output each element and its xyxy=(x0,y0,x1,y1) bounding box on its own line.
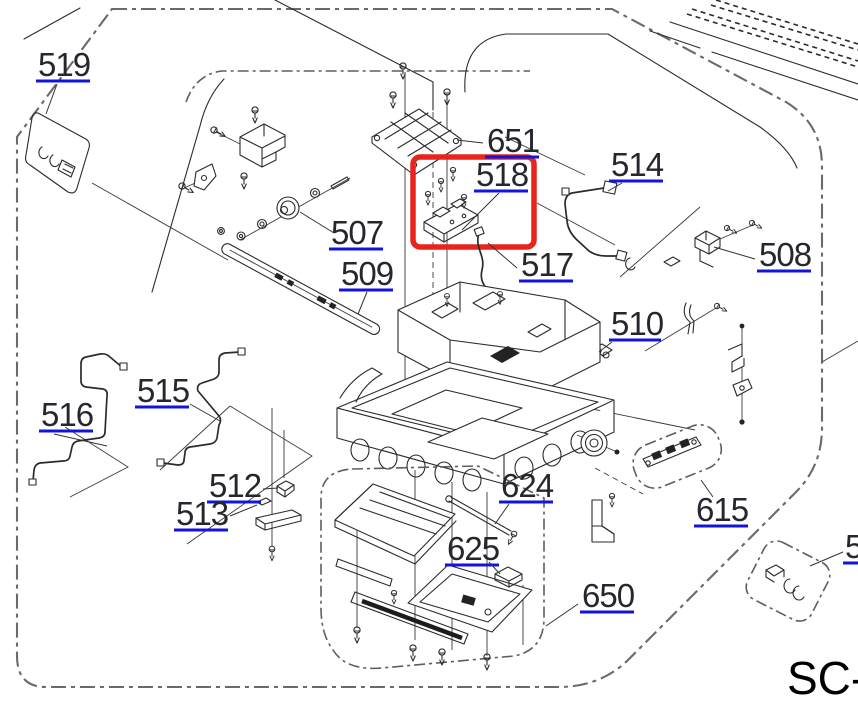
parts-diagram-page: 519 651 514 518 507 517 508 509 510 xyxy=(0,0,858,717)
part-number-513[interactable]: 513 xyxy=(176,495,228,532)
part-number-624[interactable]: 624 xyxy=(501,467,554,504)
part-number-508[interactable]: 508 xyxy=(759,236,811,273)
part-number-651[interactable]: 651 xyxy=(487,122,539,159)
model-prefix-text: SC- xyxy=(787,652,858,704)
part-number-625[interactable]: 625 xyxy=(447,530,499,567)
part-number-509[interactable]: 509 xyxy=(341,255,393,292)
part-number-519[interactable]: 519 xyxy=(38,46,90,83)
part-number-518[interactable]: 518 xyxy=(476,156,528,193)
part-number-515[interactable]: 515 xyxy=(137,372,189,409)
part-number-partial[interactable]: 5 xyxy=(845,528,858,565)
part-number-650[interactable]: 650 xyxy=(582,577,635,614)
part-number-514[interactable]: 514 xyxy=(611,146,664,183)
part-number-516[interactable]: 516 xyxy=(41,396,93,433)
part-number-510[interactable]: 510 xyxy=(611,305,664,342)
part-number-507[interactable]: 507 xyxy=(331,214,383,251)
part-number-615[interactable]: 615 xyxy=(696,491,748,528)
parts-diagram-canvas: 519 651 514 518 507 517 508 509 510 xyxy=(0,0,858,717)
part-number-517[interactable]: 517 xyxy=(521,246,573,283)
